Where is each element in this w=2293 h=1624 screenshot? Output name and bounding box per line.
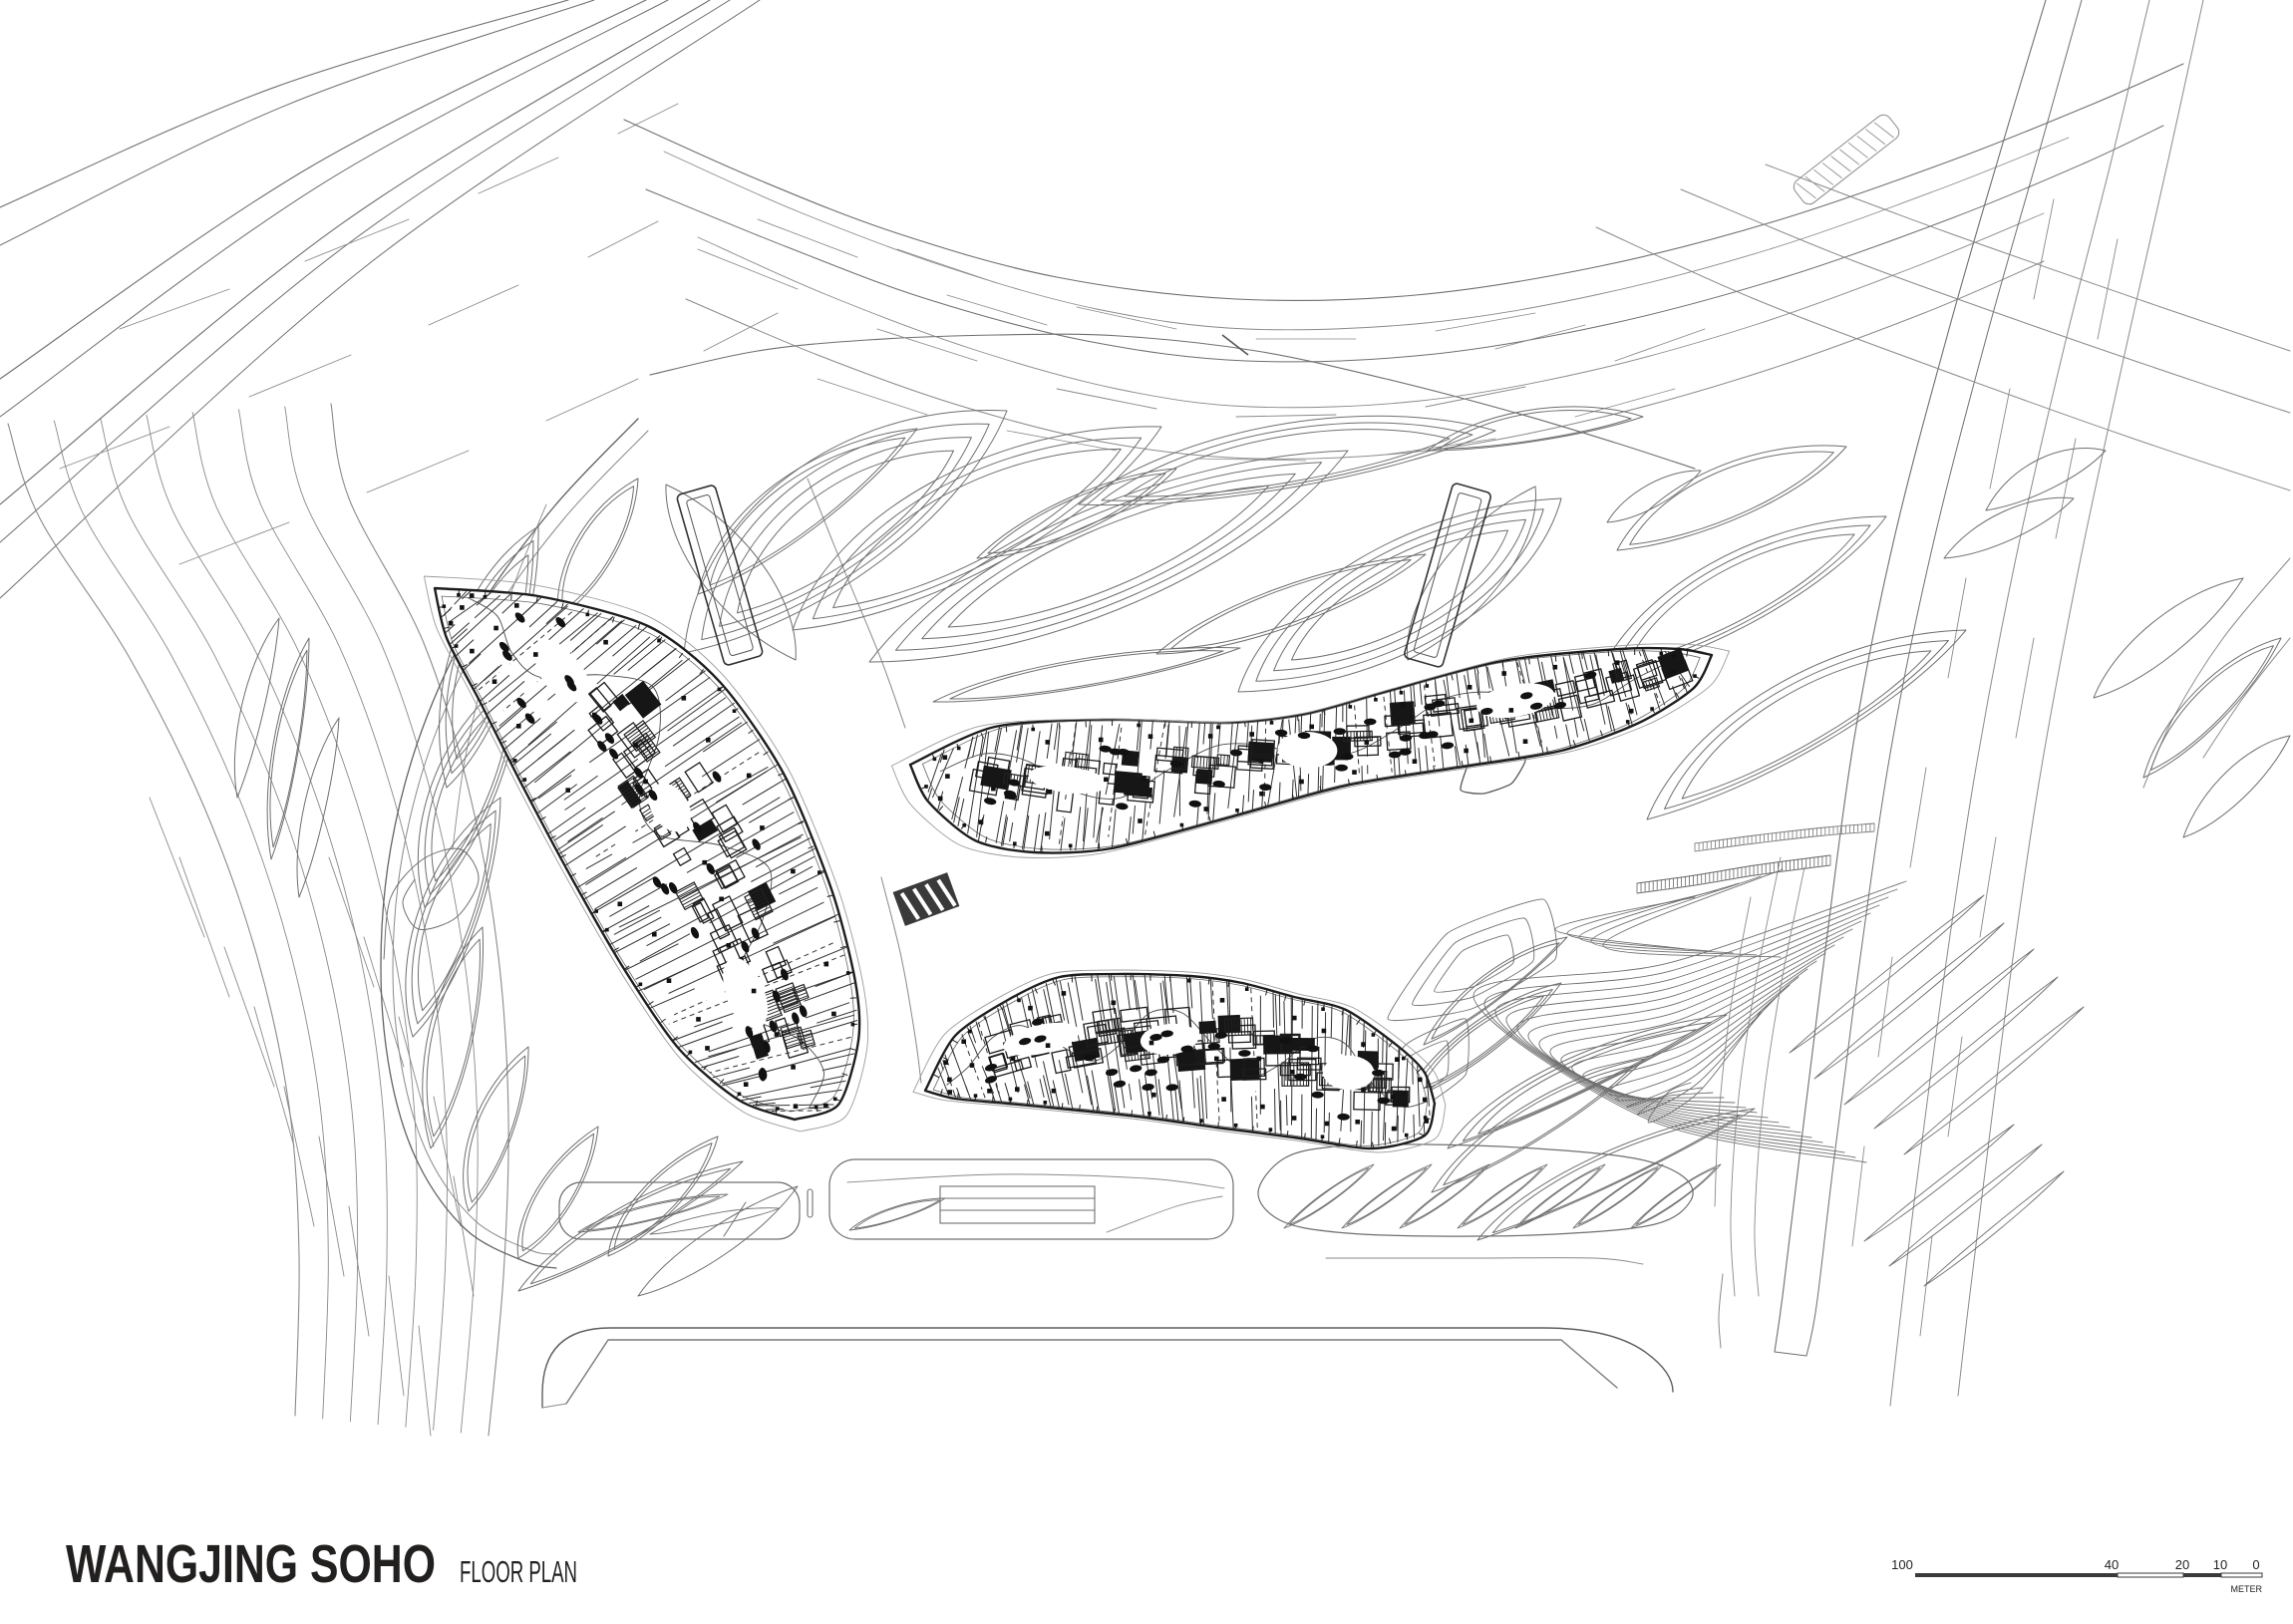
svg-text:10: 10	[2213, 1557, 2227, 1572]
svg-text:WANGJING SOHO: WANGJING SOHO	[66, 1534, 436, 1594]
svg-text:40: 40	[2105, 1557, 2119, 1572]
svg-text:100: 100	[1891, 1557, 1913, 1572]
svg-text:20: 20	[2175, 1557, 2189, 1572]
svg-text:FLOOR PLAN: FLOOR PLAN	[460, 1554, 577, 1589]
svg-text:0: 0	[2252, 1557, 2259, 1572]
svg-text:METER: METER	[2231, 1584, 2263, 1594]
